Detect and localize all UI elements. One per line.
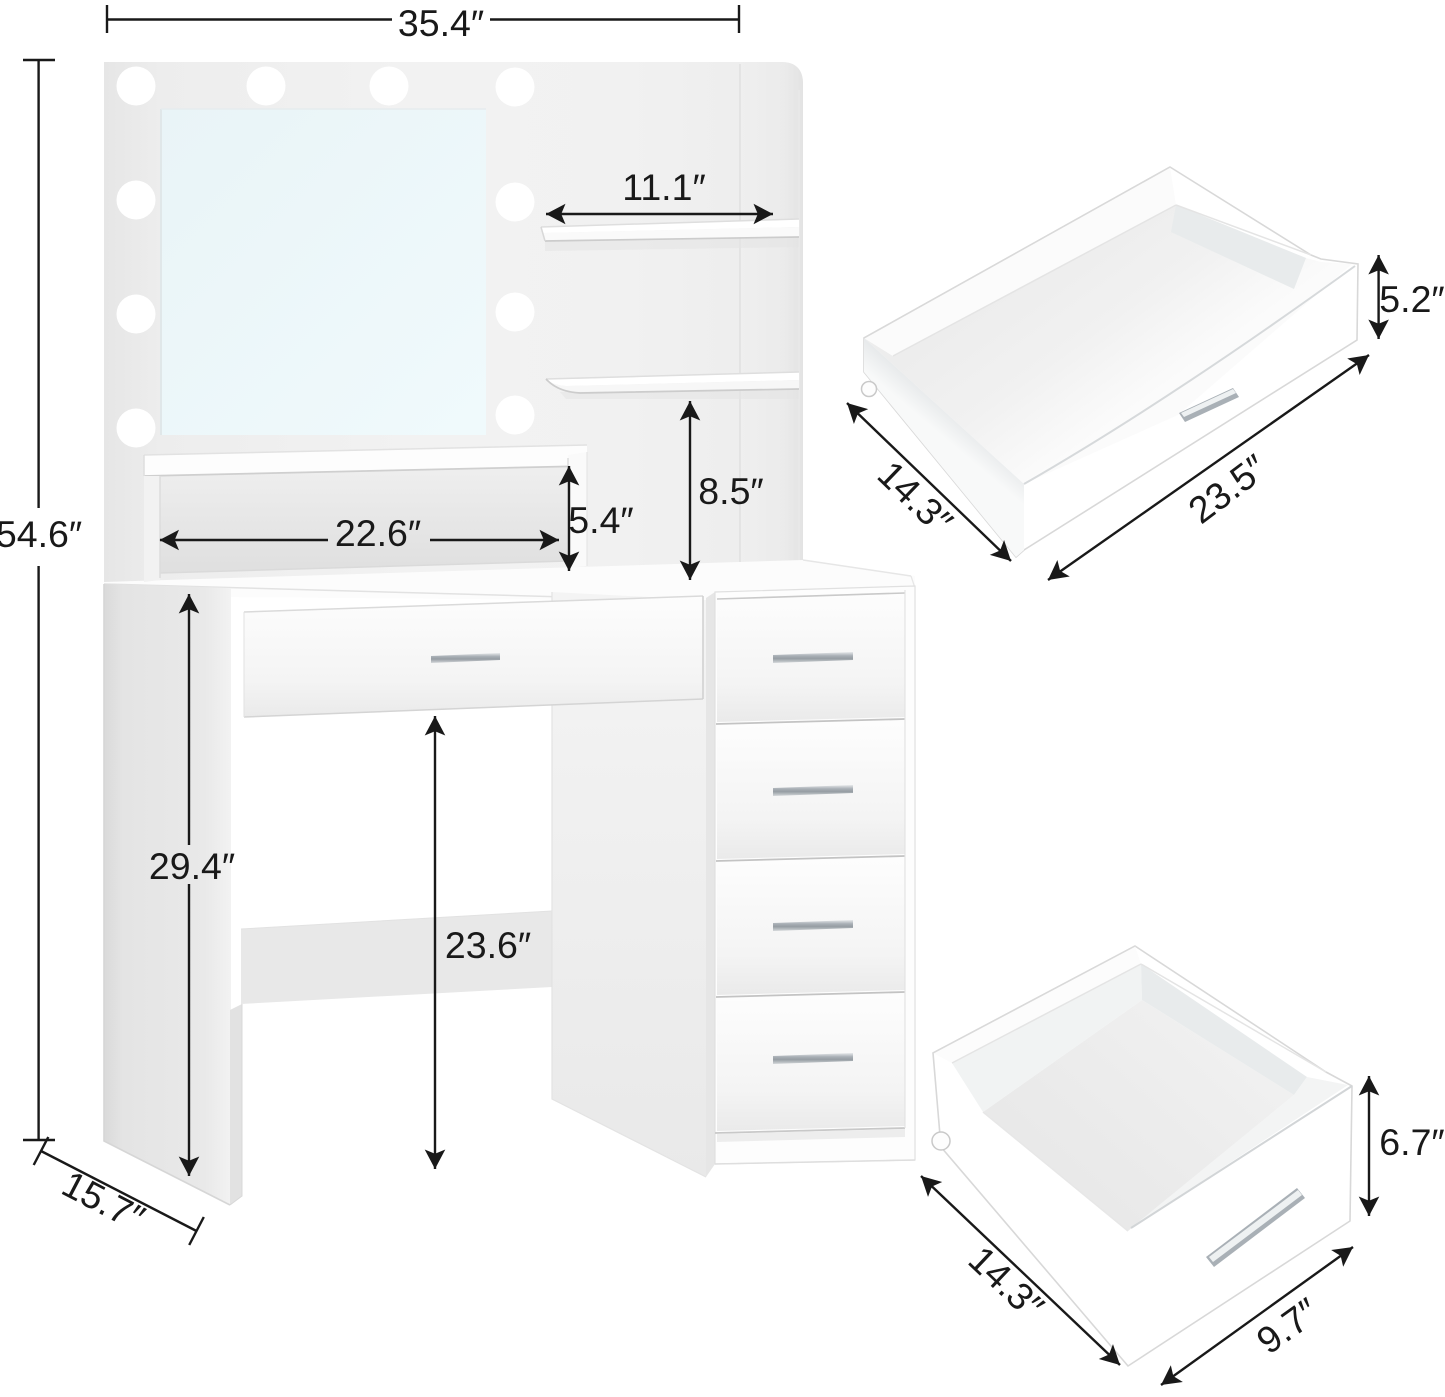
svg-text:6.7″: 6.7″ — [1379, 1121, 1444, 1163]
svg-text:29.4″: 29.4″ — [149, 845, 235, 887]
svg-text:23.6″: 23.6″ — [445, 924, 531, 966]
svg-text:35.4″: 35.4″ — [398, 2, 484, 44]
svg-text:5.2″: 5.2″ — [1379, 278, 1444, 320]
svg-text:54.6″: 54.6″ — [0, 513, 82, 555]
svg-text:22.6″: 22.6″ — [335, 512, 421, 554]
svg-text:8.5″: 8.5″ — [698, 470, 763, 512]
svg-text:11.1″: 11.1″ — [622, 166, 705, 208]
svg-text:5.4″: 5.4″ — [568, 499, 633, 541]
